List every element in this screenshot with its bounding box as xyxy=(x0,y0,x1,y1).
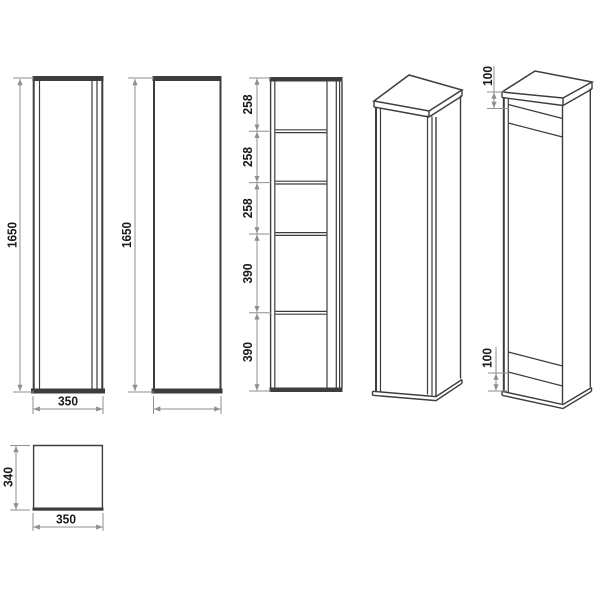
top-panel-face xyxy=(502,71,592,98)
top-panel-face xyxy=(374,75,462,111)
side-height-label: 1650 xyxy=(119,222,134,248)
front-edge-panel xyxy=(33,508,104,511)
plan-width-dimension: 350 xyxy=(33,512,103,532)
technical-drawing-page: 1650 350 1650 xyxy=(0,0,600,600)
bottom-rail-line xyxy=(508,372,562,386)
perspective-view xyxy=(373,75,463,401)
bottom-panel xyxy=(270,388,343,393)
plan-width-label: 350 xyxy=(56,512,76,527)
bottom-inset-label: 100 xyxy=(480,348,495,368)
section-segment-label: 258 xyxy=(240,95,255,115)
front-height-label: 1650 xyxy=(5,222,20,248)
side-elevation-view xyxy=(152,76,223,394)
front-width-dimension: 350 xyxy=(33,394,103,415)
top-panel xyxy=(270,77,343,82)
section-segment-label: 390 xyxy=(240,264,255,284)
bottom-inset-dimension: 100 xyxy=(480,347,511,391)
plan-depth-label: 340 xyxy=(1,467,16,487)
front-height-dimension: 1650 xyxy=(5,78,35,392)
top-plan-view xyxy=(33,445,104,511)
top-rail-line xyxy=(508,123,562,137)
base-plinth-top-edge xyxy=(502,388,592,405)
side-depth-dimension xyxy=(154,396,222,414)
cabinet-drawing-svg: 1650 350 1650 xyxy=(0,0,600,600)
front-width-label: 350 xyxy=(58,394,78,409)
perspective-detail-view xyxy=(502,71,592,409)
bottom-rail-line xyxy=(508,352,562,366)
bottom-plinth xyxy=(152,389,223,394)
section-segment-label: 258 xyxy=(240,198,255,218)
side-height-dimension: 1650 xyxy=(119,78,154,392)
top-rail-line xyxy=(508,105,562,119)
section-segment-label: 258 xyxy=(240,147,255,167)
section-segment-label: 390 xyxy=(240,342,255,362)
top-panel xyxy=(33,76,104,81)
base-plinth-top-edge xyxy=(373,380,463,397)
top-panel xyxy=(153,76,222,81)
plan-depth-dimension: 340 xyxy=(1,446,31,511)
section-chain-dimension: 258 258 258 390 390 xyxy=(240,78,271,391)
top-inset-label: 100 xyxy=(480,66,495,86)
front-elevation-view xyxy=(31,76,105,394)
section-view xyxy=(270,77,343,392)
top-panel-thickness-edge xyxy=(502,98,563,106)
